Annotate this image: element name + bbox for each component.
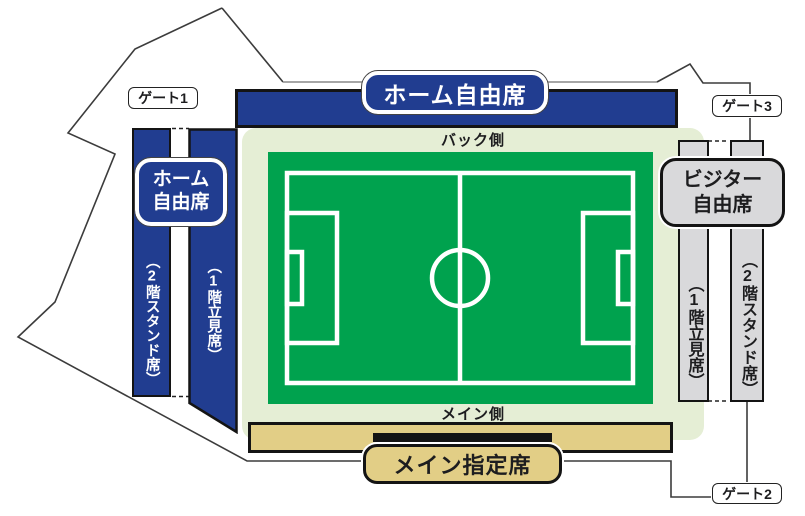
visitor-tier1-label: （1階立見席） [686,276,702,389]
visitor-label-line2: 自由席 [693,193,753,218]
gate2-label: ゲート2 [712,483,782,504]
main-stand-stripe [373,433,552,442]
home-label-line1: ホーム [153,169,209,192]
home-label-line2: 自由席 [152,192,209,215]
main-reserved-seat-label: メイン指定席 [363,444,562,484]
visitor-free-seat-label: ビジター 自由席 [660,158,785,227]
back-side-label: バック側 [242,129,704,150]
home-tier2-label: （2階スタンド席） [144,254,159,386]
soccer-pitch [268,152,653,404]
visitor-tier2-label: （2階スタンド席） [739,252,755,397]
home-free-seat-banner-label: ホーム自由席 [362,71,548,114]
gate1-label: ゲート1 [128,87,198,109]
home-tier1-label: （1階立見席） [206,259,221,362]
pitch-lines [268,152,653,404]
visitor-label-line1: ビジター [683,168,763,193]
stadium-seating-map: バック側 メイン側 ホーム自由席 （2階スタンド席） （1階立見席） ホーム 自… [0,0,805,516]
main-side-label: メイン側 [242,403,704,424]
home-free-seat-side-label: ホーム 自由席 [135,158,227,226]
gate3-label: ゲート3 [712,95,782,117]
